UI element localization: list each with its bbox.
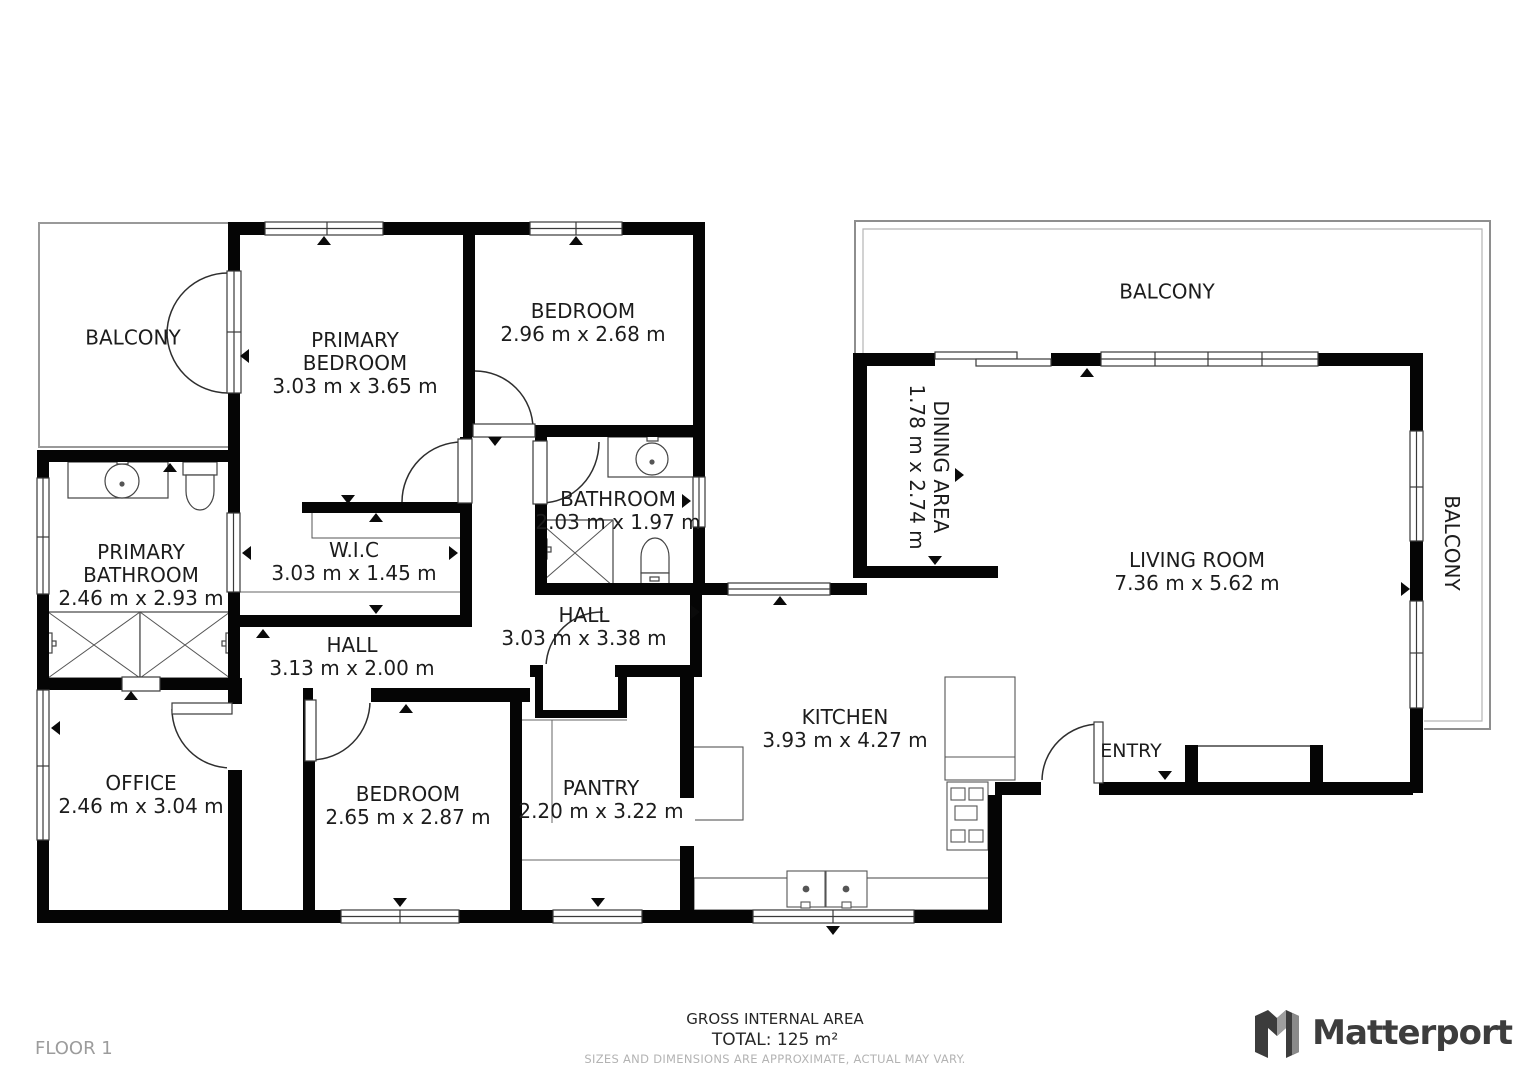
room-name: PRIMARY BATHROOM [54, 541, 229, 587]
room-label-primary-bedroom: PRIMARY BEDROOM 3.03 m x 3.65 m [268, 329, 443, 397]
room-name: BEDROOM [500, 300, 665, 323]
room-label-entry: ENTRY [1100, 741, 1161, 763]
room-name: DINING AREA [929, 384, 953, 549]
gross-internal-area-label: GROSS INTERNAL AREA [584, 1010, 965, 1028]
room-label-bedroom-bottom: BEDROOM 2.65 m x 2.87 m [325, 783, 490, 829]
room-dims: 2.20 m x 3.22 m [518, 800, 683, 823]
room-dims: 2.46 m x 2.93 m [54, 586, 229, 609]
room-name: PRIMARY BEDROOM [268, 329, 443, 375]
room-dims: 7.36 m x 5.62 m [1114, 572, 1279, 595]
room-name: HALL [269, 634, 434, 657]
room-name: PANTRY [518, 777, 683, 800]
room-name: BALCONY [1119, 281, 1214, 304]
room-name: ENTRY [1100, 741, 1161, 763]
room-name: BALCONY [85, 327, 180, 350]
room-name: BEDROOM [325, 783, 490, 806]
room-label-balcony-top-left: BALCONY [85, 327, 180, 350]
room-label-primary-bathroom: PRIMARY BATHROOM 2.46 m x 2.93 m [54, 541, 229, 609]
room-label-office: OFFICE 2.46 m x 3.04 m [58, 772, 223, 818]
matterport-wordmark: Matterport [1312, 1013, 1512, 1053]
room-name: W.I.C [271, 539, 436, 562]
room-label-living-room: LIVING ROOM 7.36 m x 5.62 m [1114, 549, 1279, 595]
room-dims: 2.46 m x 3.04 m [58, 795, 223, 818]
room-label-balcony-right: BALCONY [1440, 495, 1464, 590]
room-label-hall-small: HALL 3.13 m x 2.00 m [269, 634, 434, 680]
room-name: KITCHEN [762, 706, 927, 729]
room-dims: 2.96 m x 2.68 m [500, 323, 665, 346]
room-name: OFFICE [58, 772, 223, 795]
windows-layer [0, 0, 1534, 1085]
brand-lockup: Matterport [1252, 1006, 1512, 1060]
room-name: BALCONY [1440, 495, 1464, 590]
room-label-dining-area: DINING AREA 1.78 m x 2.74 m [905, 384, 953, 549]
room-label-kitchen: KITCHEN 3.93 m x 4.27 m [762, 706, 927, 752]
room-label-pantry: PANTRY 2.20 m x 3.22 m [518, 777, 683, 823]
room-label-bathroom: BATHROOM 2.03 m x 1.97 m [535, 488, 700, 534]
room-name: BATHROOM [535, 488, 700, 511]
room-dims: 3.93 m x 4.27 m [762, 729, 927, 752]
room-dims: 1.78 m x 2.74 m [905, 384, 929, 549]
room-dims: 2.65 m x 2.87 m [325, 806, 490, 829]
room-dims: 3.03 m x 1.45 m [271, 562, 436, 585]
room-dims: 3.03 m x 3.38 m [501, 627, 666, 650]
room-label-hall-large: HALL 3.03 m x 3.38 m [501, 604, 666, 650]
room-dims: 3.03 m x 3.65 m [268, 374, 443, 397]
footer: GROSS INTERNAL AREA TOTAL: 125 m² SIZES … [584, 1010, 965, 1066]
room-name: HALL [501, 604, 666, 627]
matterport-logo-icon [1252, 1006, 1302, 1060]
floor-label: FLOOR 1 [35, 1038, 113, 1059]
room-dims: 3.13 m x 2.00 m [269, 657, 434, 680]
room-name: LIVING ROOM [1114, 549, 1279, 572]
disclaimer-text: SIZES AND DIMENSIONS ARE APPROXIMATE, AC… [584, 1052, 965, 1066]
room-label-bedroom-top: BEDROOM 2.96 m x 2.68 m [500, 300, 665, 346]
room-label-wic: W.I.C 3.03 m x 1.45 m [271, 539, 436, 585]
floorplan: BALCONY PRIMARY BEDROOM 3.03 m x 3.65 m … [0, 0, 1534, 1085]
room-dims: 2.03 m x 1.97 m [535, 511, 700, 534]
room-label-balcony-top-right: BALCONY [1119, 281, 1214, 304]
total-area-value: TOTAL: 125 m² [584, 1030, 965, 1050]
